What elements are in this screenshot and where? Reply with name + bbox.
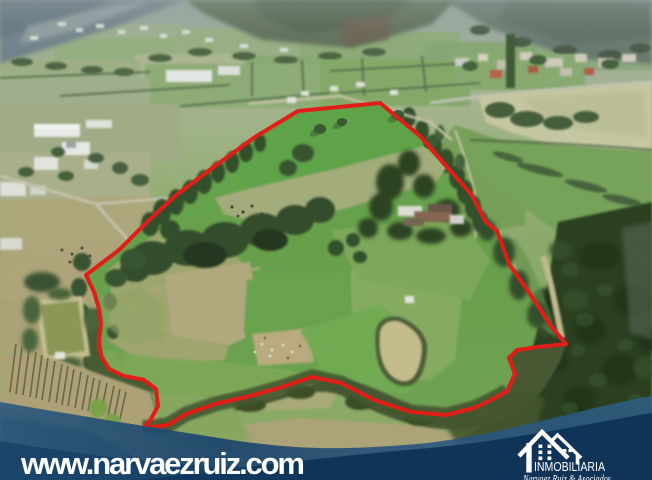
svg-text:www.narvaezruiz.com: www.narvaezruiz.com bbox=[20, 446, 305, 480]
svg-text:INMOBILIARIA: INMOBILIARIA bbox=[534, 460, 606, 474]
svg-text:Narvaez Ruiz & Asociados: Narvaez Ruiz & Asociados bbox=[522, 474, 611, 480]
